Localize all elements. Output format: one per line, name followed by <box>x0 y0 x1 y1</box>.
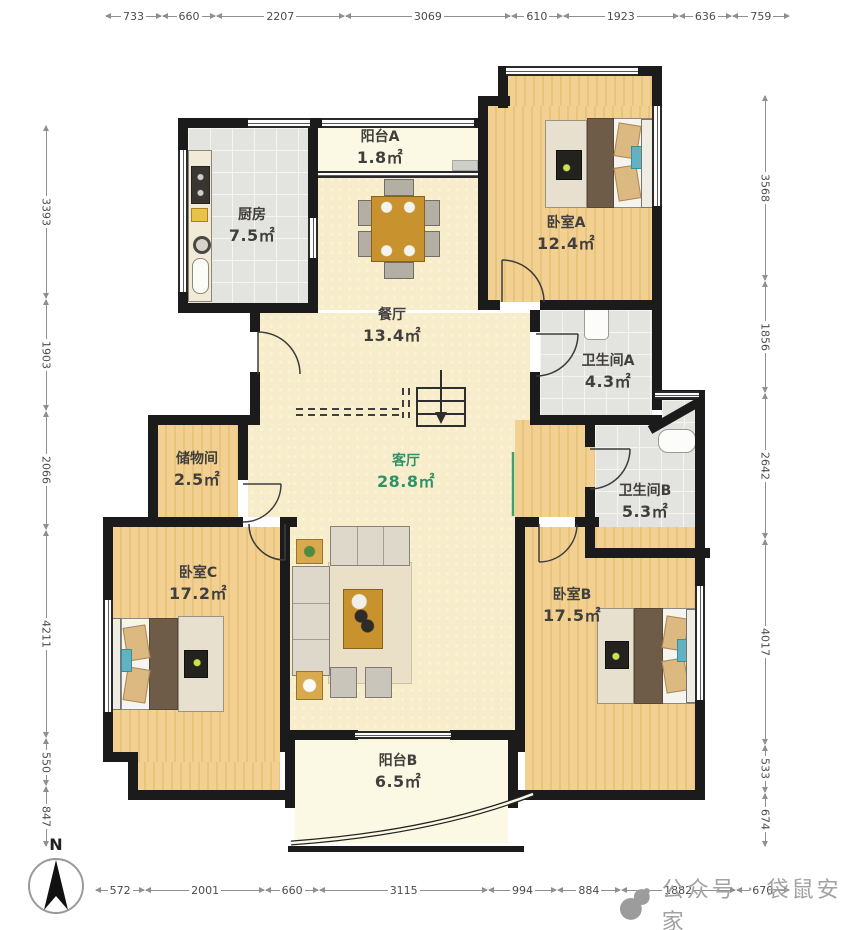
dim-value: 3568 <box>760 172 771 204</box>
dim-value: 994 <box>510 885 535 896</box>
dim-value: 1923 <box>605 11 637 22</box>
dim-segment: 759 <box>732 8 790 24</box>
room-area: 5.3㎡ <box>619 501 672 523</box>
wall-segment <box>280 517 290 752</box>
a <box>43 530 49 536</box>
dim-value: 847 <box>41 804 52 829</box>
ottoman <box>330 667 357 698</box>
bathtub <box>658 429 696 453</box>
wall-segment <box>250 303 260 332</box>
a <box>511 13 517 19</box>
dim-value: 636 <box>693 11 718 22</box>
north-arrow <box>44 860 68 910</box>
dim-value: 674 <box>760 807 771 832</box>
dim-value: 4017 <box>760 626 771 658</box>
dim-segment: 3393 <box>38 125 54 299</box>
bath-b-niche-floor <box>662 400 695 427</box>
side-table-plant <box>296 539 323 564</box>
window <box>322 118 474 128</box>
room-label-living: 客厅28.8㎡ <box>377 452 435 492</box>
wall-segment <box>308 256 318 313</box>
balcony-a-rail <box>318 171 478 178</box>
tv <box>556 150 582 180</box>
wall-segment <box>308 128 318 220</box>
wall-segment <box>515 517 539 527</box>
a <box>762 539 768 545</box>
watermark-text: 公众号 · 袋鼠安家 <box>662 872 865 930</box>
a <box>216 13 222 19</box>
bed-duvet <box>149 618 178 710</box>
dim-segment: 4017 <box>757 539 773 745</box>
dim-value: 572 <box>108 885 133 896</box>
room-label-bath_b: 卫生间B5.3㎡ <box>619 482 672 522</box>
room-label-kitchen: 厨房7.5㎡ <box>229 206 275 246</box>
wash-basin <box>192 258 209 294</box>
room-area: 17.5㎡ <box>543 605 601 627</box>
dim-value: 2207 <box>264 11 296 22</box>
dim-value: 4211 <box>41 618 52 650</box>
dim-segment: 2207 <box>216 8 345 24</box>
b <box>784 13 790 19</box>
room-name: 储物间 <box>174 450 220 469</box>
bed-duvet <box>634 608 663 704</box>
dim-value: 733 <box>121 11 146 22</box>
room-name: 餐厅 <box>363 306 421 325</box>
wall-segment <box>530 415 662 425</box>
dim-value: 1856 <box>760 321 771 353</box>
dim-value: 610 <box>524 11 549 22</box>
tv <box>184 650 208 678</box>
dim-segment: 533 <box>757 745 773 793</box>
dim-segment: 674 <box>757 793 773 847</box>
a <box>162 13 168 19</box>
wall-segment <box>478 300 500 310</box>
wall-segment <box>148 415 158 525</box>
room-label-dining: 餐厅13.4㎡ <box>363 306 421 346</box>
tv <box>605 641 629 669</box>
dim-segment: 660 <box>162 8 216 24</box>
dimension-strip-top: 733660220730696101923636759 <box>105 8 790 24</box>
dim-segment: 1856 <box>757 281 773 393</box>
window <box>655 391 699 399</box>
dim-segment: 4211 <box>38 530 54 739</box>
kitchen-appliance <box>191 208 208 222</box>
dim-segment: 2066 <box>38 411 54 530</box>
accent-pillow <box>121 649 132 672</box>
wall-segment <box>530 310 540 332</box>
wall-segment <box>450 730 525 740</box>
room-name: 厨房 <box>229 206 275 225</box>
wall-segment <box>478 96 488 310</box>
dim-segment: 3115 <box>319 882 488 898</box>
a <box>43 125 49 131</box>
wall-segment <box>288 846 524 852</box>
watermark: 公众号 · 袋鼠安家 <box>616 872 865 930</box>
dim-segment: 550 <box>38 738 54 786</box>
room-area: 28.8㎡ <box>377 471 435 493</box>
a <box>762 745 768 751</box>
wall-segment <box>280 730 358 740</box>
hall-floor-2 <box>248 425 290 517</box>
ottoman <box>365 667 392 698</box>
dining-chair <box>424 231 440 257</box>
dim-value: 2642 <box>760 450 771 482</box>
a <box>732 13 738 19</box>
bedroom-c-floor <box>128 762 280 792</box>
wall-segment <box>515 790 705 800</box>
a <box>488 887 494 893</box>
a <box>557 887 563 893</box>
dim-segment: 660 <box>265 882 319 898</box>
dim-segment: 1923 <box>563 8 679 24</box>
dim-value: 2066 <box>41 454 52 486</box>
wall-segment <box>285 740 295 808</box>
window <box>652 106 662 206</box>
wall-segment <box>585 425 595 447</box>
room-name: 阳台A <box>357 128 403 147</box>
room-area: 7.5㎡ <box>229 225 275 247</box>
window <box>695 586 705 700</box>
wall-segment <box>540 300 662 310</box>
decor <box>644 888 650 894</box>
wall-segment <box>585 548 710 558</box>
dining-chair <box>384 262 414 279</box>
window <box>178 150 188 292</box>
a <box>762 281 768 287</box>
room-area: 12.4㎡ <box>537 233 595 255</box>
dining-table <box>371 196 425 262</box>
dim-value: 3069 <box>412 11 444 22</box>
a <box>345 13 351 19</box>
north-compass: N <box>22 834 92 920</box>
wall-segment <box>515 517 525 752</box>
dim-value: 550 <box>41 750 52 775</box>
room-name: 客厅 <box>377 452 435 471</box>
room-area: 17.2㎡ <box>169 583 227 605</box>
room-area: 2.5㎡ <box>174 469 220 491</box>
dimension-strip-right: 3568185626424017533674 <box>757 95 773 847</box>
wall-segment <box>530 372 540 425</box>
a <box>145 887 151 893</box>
a <box>265 887 271 893</box>
north-label: N <box>49 835 62 854</box>
kangaroo-icon <box>616 885 654 923</box>
dim-value: 1903 <box>41 339 52 371</box>
dim-segment: 3568 <box>757 95 773 281</box>
room-name: 卫生间B <box>619 482 672 501</box>
wall-segment <box>128 790 290 800</box>
floor-plan: 阳台A1.8㎡厨房7.5㎡卧室A12.4㎡餐厅13.4㎡卫生间A4.3㎡储物间2… <box>0 0 865 930</box>
a <box>43 411 49 417</box>
dim-segment: 1903 <box>38 299 54 411</box>
dim-value: 533 <box>760 756 771 781</box>
balcony-door-window <box>355 731 451 739</box>
dim-segment: 610 <box>511 8 563 24</box>
dim-segment: 884 <box>557 882 621 898</box>
room-area: 13.4㎡ <box>363 325 421 347</box>
room-label-bedroom_a: 卧室A12.4㎡ <box>537 214 595 254</box>
dining-chair <box>424 200 440 226</box>
dim-value: 884 <box>576 885 601 896</box>
wall-segment <box>103 517 243 527</box>
dim-value: 3115 <box>388 885 420 896</box>
dim-segment: 636 <box>679 8 732 24</box>
a <box>105 13 111 19</box>
dim-segment: 2001 <box>145 882 265 898</box>
bed-duvet <box>587 118 614 208</box>
corridor-floor <box>515 420 595 517</box>
window <box>248 118 310 128</box>
dim-value: 2001 <box>189 885 221 896</box>
dim-value: 3393 <box>41 196 52 228</box>
dim-segment: 572 <box>95 882 145 898</box>
dim-segment: 733 <box>105 8 162 24</box>
dim-segment: 2642 <box>757 393 773 539</box>
dimension-strip-left: 3393190320664211550847 <box>38 125 54 847</box>
a <box>95 887 101 893</box>
sofa <box>330 526 410 566</box>
room-name: 卧室A <box>537 214 595 233</box>
room-label-bath_a: 卫生间A4.3㎡ <box>582 352 635 392</box>
dim-value: 759 <box>748 11 773 22</box>
dim-value: 660 <box>280 885 305 896</box>
dim-segment: 994 <box>488 882 557 898</box>
window <box>506 66 638 76</box>
dim-value: 660 <box>177 11 202 22</box>
kitchen-sink <box>193 236 211 254</box>
dining-chair <box>384 179 414 196</box>
a <box>762 793 768 799</box>
room-label-balcony_b: 阳台B6.5㎡ <box>375 752 421 792</box>
coffee-table <box>343 589 383 649</box>
a <box>319 887 325 893</box>
dim-segment: 3069 <box>345 8 511 24</box>
a <box>563 13 569 19</box>
room-area: 6.5㎡ <box>375 771 421 793</box>
room-name: 卧室C <box>169 564 227 583</box>
stove <box>191 166 210 204</box>
wall-segment <box>238 415 248 480</box>
room-name: 阳台B <box>375 752 421 771</box>
room-area: 4.3㎡ <box>582 371 635 393</box>
room-label-storage: 储物间2.5㎡ <box>174 450 220 490</box>
room-area: 1.8㎡ <box>357 147 403 169</box>
room-label-balcony_a: 阳台A1.8㎡ <box>357 128 403 168</box>
a <box>43 299 49 305</box>
window <box>103 600 113 712</box>
bedroom-a-floor <box>508 76 652 108</box>
room-label-bedroom_b: 卧室B17.5㎡ <box>543 586 601 626</box>
b <box>762 841 768 847</box>
wall-segment <box>178 303 318 313</box>
sofa <box>292 566 330 676</box>
room-name: 卫生间A <box>582 352 635 371</box>
a <box>679 13 685 19</box>
balcony-a-mat <box>452 160 478 171</box>
a <box>762 95 768 101</box>
kitchen-pass-window <box>308 218 318 258</box>
side-table-lamp <box>296 671 323 700</box>
room-name: 卧室B <box>543 586 601 605</box>
a <box>43 738 49 744</box>
a <box>43 786 49 792</box>
room-label-bedroom_c: 卧室C17.2㎡ <box>169 564 227 604</box>
a <box>762 393 768 399</box>
